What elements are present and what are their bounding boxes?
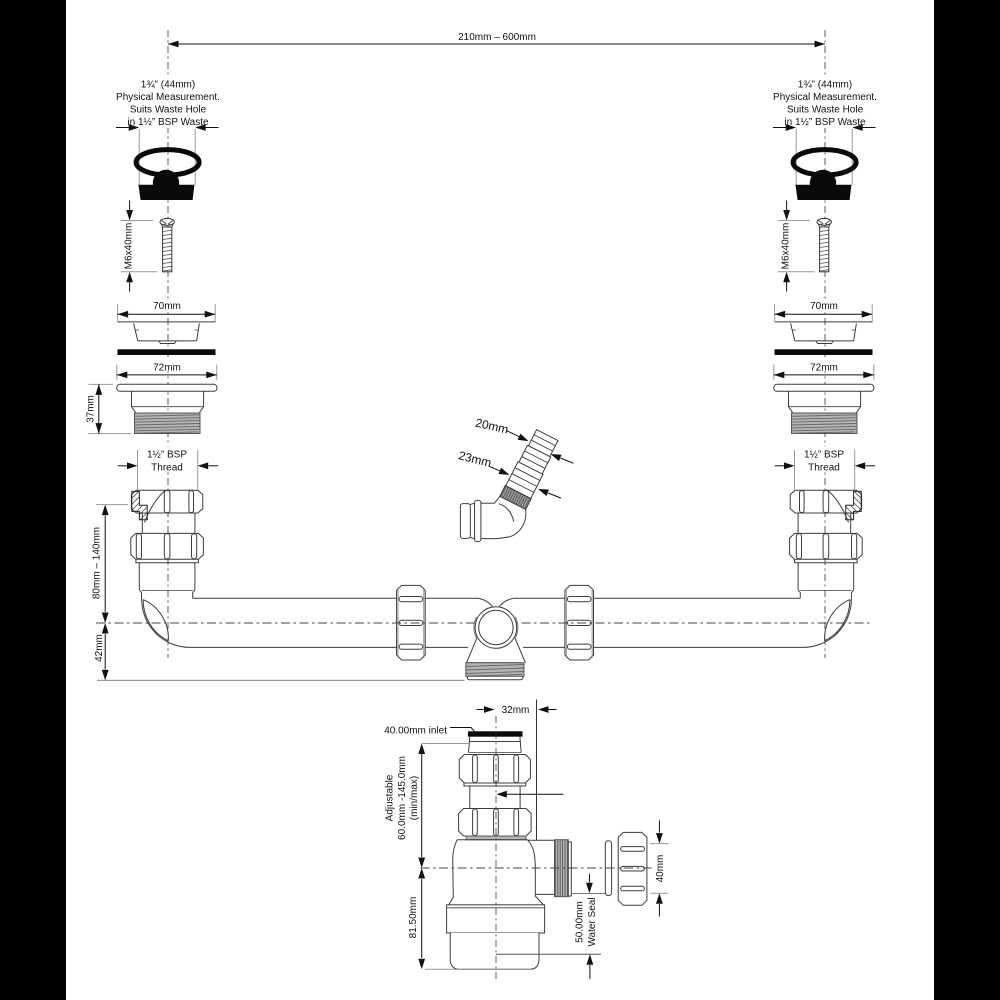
svg-text:M6x40mm: M6x40mm xyxy=(124,223,135,270)
svg-text:1½” BSP: 1½” BSP xyxy=(147,450,187,461)
svg-text:Adjustable: Adjustable xyxy=(384,774,395,821)
svg-text:70mm: 70mm xyxy=(153,301,181,312)
svg-text:42mm: 42mm xyxy=(94,634,105,662)
svg-text:40mm: 40mm xyxy=(655,855,666,883)
svg-text:60.0mm -145.0mm: 60.0mm -145.0mm xyxy=(397,756,408,840)
svg-text:1¾” (44mm): 1¾” (44mm) xyxy=(141,80,195,91)
svg-text:in 1½” BSP Waste: in 1½” BSP Waste xyxy=(127,117,209,128)
svg-text:Water Seal: Water Seal xyxy=(587,897,598,946)
svg-text:40.00mm inlet: 40.00mm inlet xyxy=(384,726,447,737)
svg-text:80mm – 140mm: 80mm – 140mm xyxy=(92,527,103,599)
svg-text:(min/max): (min/max) xyxy=(409,776,420,820)
svg-text:50.00mm: 50.00mm xyxy=(575,901,586,943)
svg-text:81.50mm: 81.50mm xyxy=(408,897,419,939)
svg-text:32mm: 32mm xyxy=(502,705,530,716)
svg-text:Thread: Thread xyxy=(151,463,183,474)
svg-text:37mm: 37mm xyxy=(86,395,97,423)
svg-text:Physical Measurement.: Physical Measurement. xyxy=(116,92,220,103)
svg-text:Suits Waste Hole: Suits Waste Hole xyxy=(130,105,207,116)
svg-text:72mm: 72mm xyxy=(153,363,181,374)
svg-text:210mm – 600mm: 210mm – 600mm xyxy=(458,32,536,43)
